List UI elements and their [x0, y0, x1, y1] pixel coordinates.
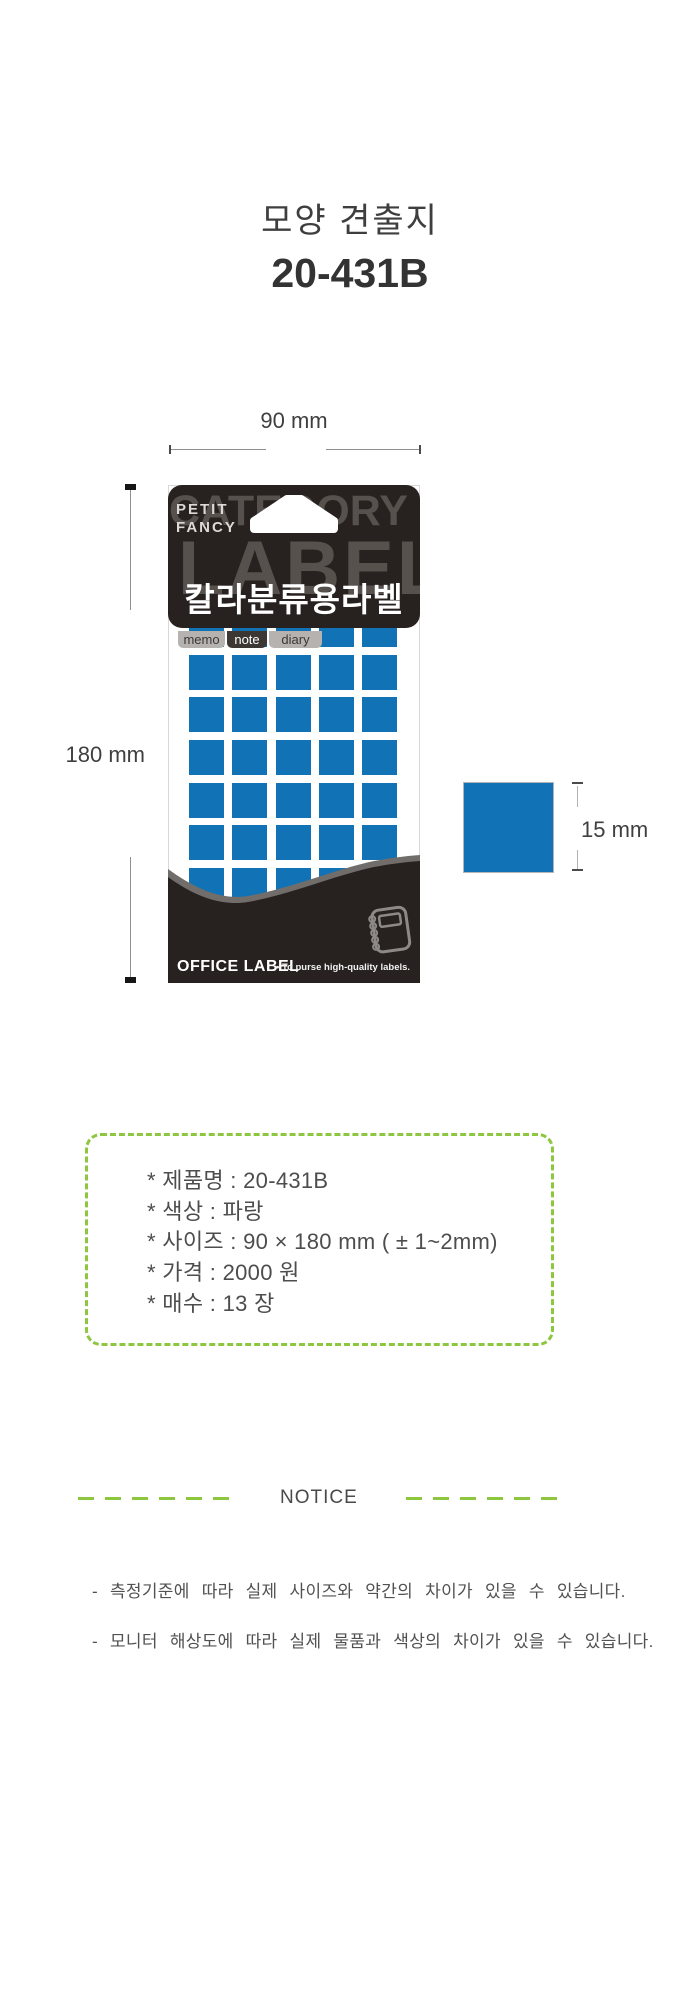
unit-dimension-line-top — [577, 786, 578, 807]
spec-price: * 가격 : 2000 원 — [147, 1258, 498, 1289]
hanger-hole-icon — [168, 485, 420, 545]
product-detail-page: 모양 견출지 20-431B 90 mm 180 mm CATEGORY LAB… — [0, 0, 700, 2000]
label-square — [189, 740, 224, 775]
label-square — [319, 783, 354, 818]
notice-divider: NOTICE — [78, 1487, 558, 1509]
notice-dash-left — [78, 1497, 236, 1500]
page-title: 모양 견출지 — [0, 193, 700, 242]
spec-sheet-count: * 매수 : 13 장 — [147, 1289, 498, 1320]
height-dimension-line-bottom — [130, 857, 131, 977]
tab-row: memo note diary — [178, 631, 322, 648]
tab-diary: diary — [269, 631, 322, 648]
product-specs-box: * 제품명 : 20-431B * 색상 : 파랑 * 사이즈 : 90 × 1… — [85, 1133, 554, 1346]
label-square — [319, 697, 354, 732]
unit-dimension-label: 15 mm — [581, 817, 648, 843]
label-square — [362, 783, 397, 818]
label-square — [276, 783, 311, 818]
unit-dimension-tick-top — [572, 782, 583, 784]
label-square — [319, 740, 354, 775]
label-square — [362, 655, 397, 690]
label-square — [276, 740, 311, 775]
height-dimension-line-top — [130, 490, 131, 610]
notice-note-2: - 모니터 해상도에 따라 실제 물품과 색상의 차이가 있을 수 있습니다. — [92, 1627, 654, 1652]
label-square — [189, 655, 224, 690]
notice-dash-right — [406, 1497, 558, 1500]
width-dimension-line-right — [326, 449, 420, 450]
package-footer: OFFICE LABEL • To purse high-quality lab… — [168, 855, 420, 983]
width-dimension-label: 90 mm — [168, 408, 420, 434]
height-dimension-label: 180 mm — [20, 742, 145, 768]
label-square — [362, 740, 397, 775]
label-square — [232, 655, 267, 690]
width-dimension-line-left — [170, 449, 266, 450]
label-square — [276, 655, 311, 690]
notice-note-1: - 측정기준에 따라 실제 사이즈와 약간의 차이가 있을 수 있습니다. — [92, 1577, 626, 1602]
notebook-icon — [358, 903, 418, 959]
width-dimension-tick-left — [169, 445, 171, 454]
unit-dimension-tick-bottom — [572, 869, 583, 871]
label-square — [362, 697, 397, 732]
label-square — [189, 783, 224, 818]
label-square — [189, 697, 224, 732]
unit-dimension-line-bottom — [577, 850, 578, 869]
model-number: 20-431B — [0, 250, 700, 297]
label-square — [232, 783, 267, 818]
product-package-image: CATEGORY LABEL PETIT FANCY 칼라분류용라벨 memo … — [168, 485, 420, 983]
spec-size: * 사이즈 : 90 × 180 mm ( ± 1~2mm) — [147, 1227, 498, 1258]
footer-tagline: • To purse high-quality labels. — [276, 962, 410, 973]
label-square — [276, 697, 311, 732]
label-size-swatch — [463, 782, 554, 873]
label-square — [232, 740, 267, 775]
package-header: CATEGORY LABEL PETIT FANCY 칼라분류용라벨 — [168, 485, 420, 628]
package-product-label: 칼라분류용라벨 — [168, 573, 420, 621]
notice-heading: NOTICE — [280, 1487, 358, 1509]
width-dimension-tick-right — [419, 445, 421, 454]
tab-note: note — [227, 631, 267, 648]
label-square — [319, 655, 354, 690]
label-square — [232, 697, 267, 732]
specs-list: * 제품명 : 20-431B * 색상 : 파랑 * 사이즈 : 90 × 1… — [147, 1166, 498, 1320]
spec-color: * 색상 : 파랑 — [147, 1197, 498, 1228]
height-dimension-tick-bottom — [125, 977, 136, 983]
tab-memo: memo — [178, 631, 225, 648]
spec-product-name: * 제품명 : 20-431B — [147, 1166, 498, 1197]
